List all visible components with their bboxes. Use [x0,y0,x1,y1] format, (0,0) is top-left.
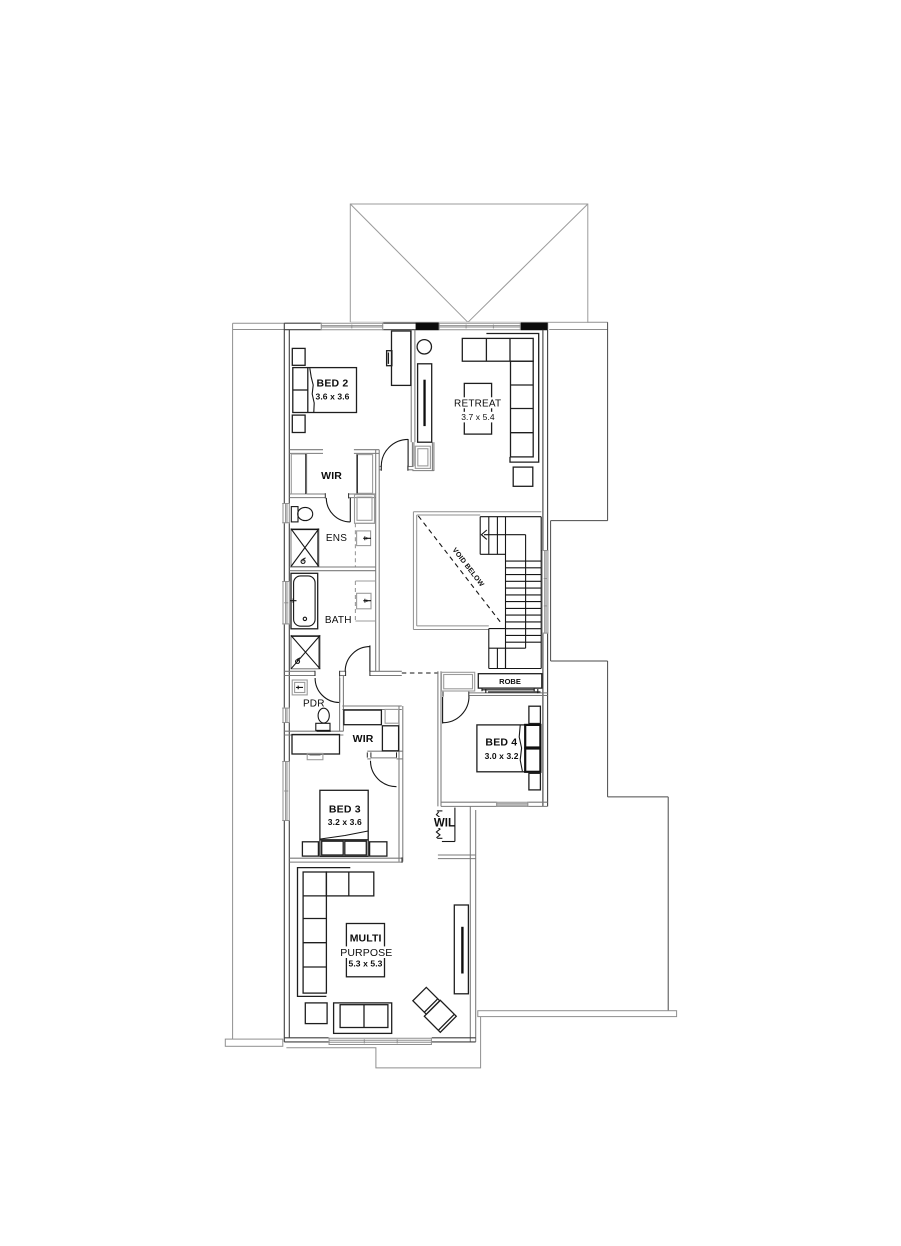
svg-text:WIR: WIR [353,733,374,745]
svg-text:3.2 x 3.6: 3.2 x 3.6 [328,817,362,827]
svg-text:3.6 x 3.6: 3.6 x 3.6 [316,391,350,401]
svg-text:3.7 x 5.4: 3.7 x 5.4 [461,412,495,422]
svg-text:BED 2: BED 2 [317,378,349,390]
svg-text:BED 3: BED 3 [329,804,361,816]
svg-text:ROBE: ROBE [499,677,521,686]
svg-text:PDR: PDR [303,699,325,710]
svg-text:ENS: ENS [326,533,347,544]
svg-text:MULTI: MULTI [350,933,382,945]
svg-text:BED 4: BED 4 [485,736,517,748]
svg-text:3.0 x 3.2: 3.0 x 3.2 [485,751,519,761]
svg-text:PURPOSE: PURPOSE [340,947,392,959]
svg-text:BATH: BATH [325,615,352,626]
svg-text:WIL: WIL [434,818,455,830]
svg-text:RETREAT: RETREAT [454,399,501,410]
svg-text:5.3 x 5.3: 5.3 x 5.3 [349,959,383,969]
svg-text:WIR: WIR [321,470,342,482]
